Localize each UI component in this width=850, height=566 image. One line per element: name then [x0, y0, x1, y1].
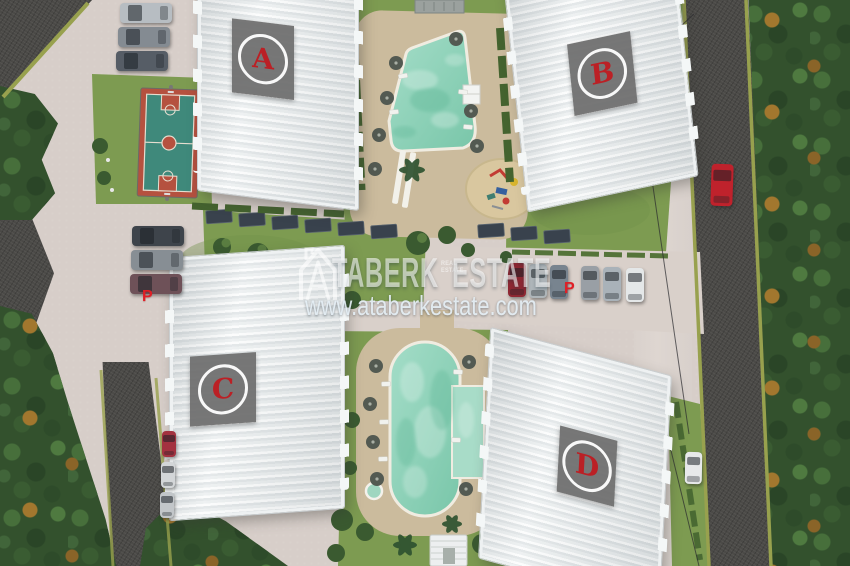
south-pool	[366, 342, 484, 516]
site-plan: A B C D	[0, 0, 850, 566]
building-c: C	[170, 246, 344, 520]
forest-left-strip	[0, 86, 58, 220]
parked-car	[162, 431, 176, 457]
red-car-on-road	[710, 164, 733, 207]
garden-hut	[430, 535, 467, 566]
building-b: B	[503, 0, 698, 211]
parked-car	[131, 250, 183, 270]
parked-car	[116, 51, 168, 71]
parked-car	[508, 263, 526, 297]
building-b-letter: B	[589, 57, 615, 90]
building-b-label-circle: B	[575, 43, 629, 103]
parked-car	[603, 267, 621, 301]
white-car-on-road	[685, 452, 703, 484]
palm-trees	[393, 157, 462, 558]
building-a-label: A	[232, 18, 294, 100]
sun-umbrellas	[363, 32, 484, 496]
building-b-label: B	[567, 31, 637, 116]
north-pool	[389, 31, 475, 208]
parked-car	[529, 264, 547, 298]
building-c-letter: C	[212, 375, 234, 405]
watermark-small-line1: REAL	[441, 260, 464, 267]
pool-cabin	[463, 85, 480, 104]
sun-loungers	[378, 73, 472, 461]
parked-car	[130, 274, 182, 294]
watermark-small-line2: ESTATE	[441, 267, 464, 274]
road-top-left	[0, 0, 98, 102]
building-d-label-circle: D	[561, 435, 613, 498]
building-c-label: C	[190, 352, 256, 427]
pool-board	[392, 150, 406, 204]
parked-car	[626, 268, 644, 302]
entrance-gate	[415, 0, 464, 13]
building-c-label-circle: C	[198, 363, 248, 416]
kiddie-pool	[366, 483, 382, 499]
building-a-label-circle: A	[238, 31, 288, 87]
building-d-letter: D	[574, 449, 599, 483]
parked-car	[118, 27, 170, 47]
building-a-letter: A	[252, 44, 274, 75]
building-d-label: D	[557, 426, 618, 507]
parked-car	[132, 226, 184, 246]
parked-car	[120, 3, 172, 23]
parking-sign-right: P	[564, 281, 575, 297]
basketball-court	[137, 84, 201, 202]
parked-car	[581, 266, 599, 300]
parked-car	[161, 462, 175, 488]
watermark-small-text: REAL ESTATE	[441, 260, 464, 274]
parked-car	[160, 492, 174, 518]
parking-sign-left: P	[142, 289, 153, 305]
building-a: A	[198, 0, 358, 210]
carport-panels	[206, 209, 571, 244]
pool-board	[402, 152, 417, 208]
